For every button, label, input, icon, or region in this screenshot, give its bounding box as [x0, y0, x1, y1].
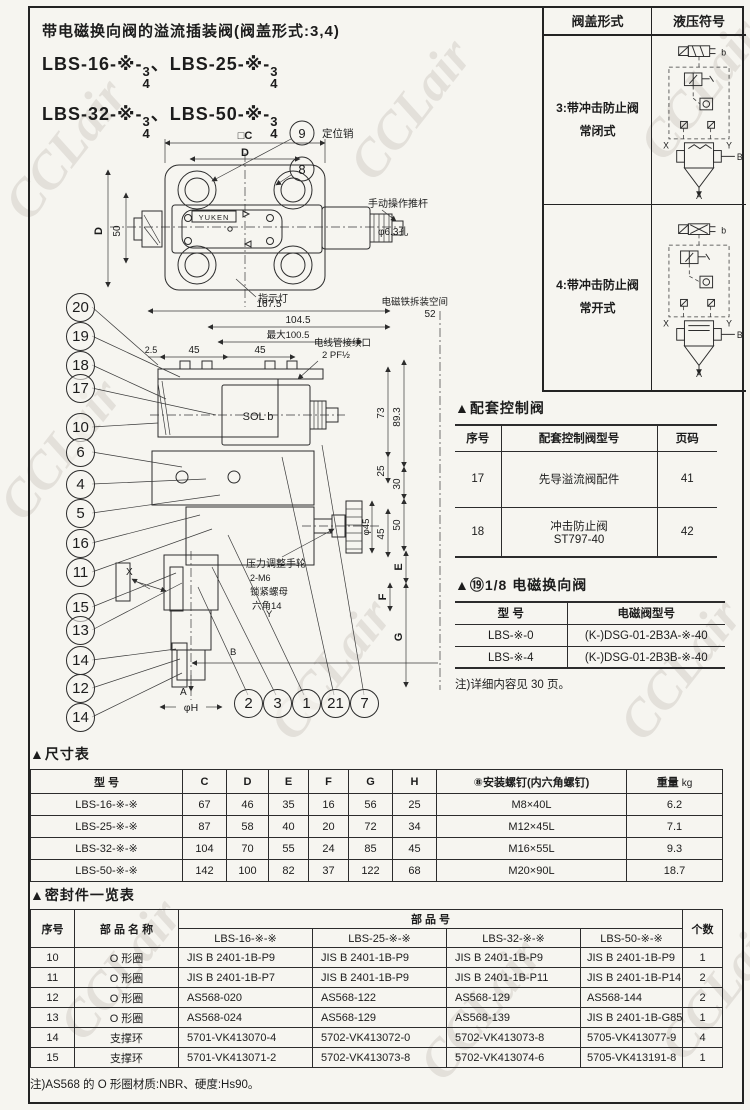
dim-phi-45: φ45	[361, 519, 372, 536]
balloon-13: 13	[66, 616, 95, 645]
cell-screw: M20×90L	[437, 860, 627, 882]
cell-F: 20	[309, 816, 349, 838]
cell-p32: 5702-VK413073-8	[447, 1028, 581, 1048]
dim-167-5: 167.5	[256, 299, 281, 310]
dim-45-a: 45	[188, 345, 200, 356]
dim-45-b: 45	[254, 345, 266, 356]
dim-E: E	[393, 563, 405, 570]
cell-model: LBS-50-※-※	[31, 860, 183, 882]
cell-G: 122	[349, 860, 393, 882]
cell-C: 142	[183, 860, 227, 882]
solenoid-valve-section: ▲⑲1/8 电磁换向阀 型 号 电磁阀型号 LBS-※-0 (K-)DSG-01…	[455, 575, 725, 692]
dim-D-side: D	[93, 227, 105, 235]
cell-p50: JIS B 2401-1B-P9	[581, 948, 683, 968]
cell-model-line1: 冲击防止阀	[504, 518, 655, 534]
cell-weight: 6.2	[627, 794, 723, 816]
balloon-16: 16	[66, 529, 95, 558]
cell-screw: M16×55L	[437, 838, 627, 860]
col-C: C	[183, 770, 227, 794]
cell-part-name: O 形圈	[75, 988, 179, 1008]
cell-qty: 1	[683, 1048, 723, 1068]
cover-header-form: 阀盖形式	[544, 6, 651, 36]
seal-table-title: ▲密封件一览表	[30, 885, 723, 905]
separator: 、	[151, 54, 170, 74]
cell-no: 17	[455, 451, 501, 507]
cell-p16: AS568-020	[179, 988, 313, 1008]
table-row: 11O 形圈JIS B 2401-1B-P7JIS B 2401-1B-P9JI…	[31, 968, 723, 988]
cell-F: 37	[309, 860, 349, 882]
solenoid-symbol: b	[679, 46, 727, 58]
cell-no: 18	[455, 507, 501, 557]
balloon-14a: 14	[66, 646, 95, 675]
solenoid-table-note: 注)详细内容见 30 页。	[455, 676, 725, 692]
cover-form-3-sub: 常闭式	[579, 120, 615, 143]
pilot-circuit-symbol	[669, 56, 729, 138]
port-y-label: Y	[726, 319, 732, 329]
col-G: G	[349, 770, 393, 794]
balloon-4: 4	[66, 470, 95, 499]
cell-model: LBS-※-4	[455, 646, 567, 668]
col-no: 序号	[455, 425, 501, 451]
cell-model: LBS-32-※-※	[31, 838, 183, 860]
dim-D-top: D	[241, 147, 249, 159]
hex-label: 六角14	[252, 600, 282, 612]
pushrod-label: 手动操作推杆	[368, 197, 428, 210]
seal-list-section: ▲密封件一览表 序号 部 品 名 称 部 品 号 个数 LBS-16-※-※ L…	[30, 885, 723, 1092]
cell-p25: JIS B 2401-1B-P9	[313, 968, 447, 988]
dim-50: 50	[112, 225, 123, 237]
dim-table-title: ▲尺寸表	[30, 744, 723, 764]
table-row: 10O 形圈JIS B 2401-1B-P9JIS B 2401-1B-P9JI…	[31, 948, 723, 968]
cell-no: 15	[31, 1048, 75, 1068]
cover-form-4-label: 4:带冲击防止阀	[556, 274, 639, 297]
callout-9: 9	[298, 126, 305, 141]
cell-C: 87	[183, 816, 227, 838]
cell-no: 13	[31, 1008, 75, 1028]
col-solenoid-model: 电磁阀型号	[567, 602, 725, 624]
port-x-label: X	[663, 141, 669, 151]
cell-p16: 5701-VK413071-2	[179, 1048, 313, 1068]
cell-F: 24	[309, 838, 349, 860]
balloon-14b: 14	[66, 703, 95, 732]
dim-F: F	[377, 593, 389, 600]
balloon-6: 6	[66, 438, 95, 467]
fraction: 34	[143, 66, 151, 91]
subcol-lbs32: LBS-32-※-※	[447, 929, 581, 948]
cell-p50: 5705-VK413191-8	[581, 1048, 683, 1068]
weight-label: 重量	[657, 777, 679, 789]
cover-form-4-sub: 常开式	[579, 297, 615, 320]
table-header-row: 型 号 电磁阀型号	[455, 602, 725, 624]
cell-E: 55	[269, 838, 309, 860]
cell-p25: 5702-VK413073-8	[313, 1048, 447, 1068]
frac-den: 4	[270, 78, 278, 90]
hole-label: φ6.3孔	[378, 226, 408, 238]
cell-qty: 2	[683, 988, 723, 1008]
col-model: 型 号	[455, 602, 567, 624]
port-A-label: A	[696, 191, 702, 200]
cell-F: 16	[309, 794, 349, 816]
table-row: 18 冲击防止阀 ST797-40 42	[455, 507, 717, 557]
dim-45c: 45	[376, 528, 387, 540]
cell-p50: JIS B 2401-1B-P14	[581, 968, 683, 988]
dim-G: G	[393, 633, 405, 642]
front-view: 167.5 电磁铁拆装空间 52 104.5 最大100.5 2.5 45 45…	[92, 296, 448, 717]
cell-model: LBS-16-※-※	[31, 794, 183, 816]
subcol-lbs16: LBS-16-※-※	[179, 929, 313, 948]
balloon-5: 5	[66, 499, 95, 528]
cell-D: 46	[227, 794, 269, 816]
cell-p32: JIS B 2401-1B-P9	[447, 948, 581, 968]
cell-weight: 18.7	[627, 860, 723, 882]
hydraulic-symbol-svg: b X Y	[654, 218, 744, 378]
dim-C: □C	[238, 130, 253, 142]
table-row: LBS-32-※-※1047055248545M16×55L9.3	[31, 838, 723, 860]
brand-label: YUKEN	[199, 213, 230, 222]
dim-25: 25	[376, 465, 387, 477]
cell-model-line2: ST797-40	[504, 534, 655, 546]
dim-73: 73	[376, 407, 387, 419]
table-row: LBS-25-※-※875840207234M12×45L7.1	[31, 816, 723, 838]
dim-2-5: 2.5	[145, 345, 158, 355]
cell-G: 72	[349, 816, 393, 838]
hydraulic-symbol-svg: b X Y	[654, 40, 744, 200]
balloon-3: 3	[263, 689, 292, 718]
cell-qty: 2	[683, 968, 723, 988]
col-model: 型 号	[31, 770, 183, 794]
port-B-label: B	[737, 330, 743, 340]
col-no: 序号	[31, 910, 75, 948]
cover-form-3: 3:带冲击防止阀 常闭式	[544, 36, 651, 204]
cell-D: 58	[227, 816, 269, 838]
cell-p32: 5702-VK413074-6	[447, 1048, 581, 1068]
weight-unit: kg	[682, 778, 693, 789]
col-screw: ⑧安装螺钉(内六角螺钉)	[437, 770, 627, 794]
col-page: 页码	[657, 425, 717, 451]
cell-weight: 7.1	[627, 816, 723, 838]
cell-part-name: O 形圈	[75, 948, 179, 968]
table-row: LBS-50-※-※142100823712268M20×90L18.7	[31, 860, 723, 882]
port-y-label: Y	[726, 141, 732, 151]
table-header-row: 序号 配套控制阀型号 页码	[455, 425, 717, 451]
solenoid-symbol: b	[679, 224, 727, 236]
cell-C: 104	[183, 838, 227, 860]
col-H: H	[393, 770, 437, 794]
cell-part-name: 支撑环	[75, 1028, 179, 1048]
cover-form-4: 4:带冲击防止阀 常开式	[544, 204, 651, 390]
model-2: LBS-25-※-	[170, 54, 271, 74]
col-D: D	[227, 770, 269, 794]
cell-H: 25	[393, 794, 437, 816]
cell-model: LBS-※-0	[455, 624, 567, 646]
port-X-label: X	[126, 567, 133, 578]
balloon-19: 19	[66, 322, 95, 351]
hydraulic-symbol-3: b X Y	[654, 40, 744, 205]
cell-p16: 5701-VK413070-4	[179, 1028, 313, 1048]
cell-screw: M12×45L	[437, 816, 627, 838]
table-row: LBS-※-0 (K-)DSG-01-2B3A-※-40	[455, 624, 725, 646]
balloon-17: 17	[66, 374, 95, 403]
table-row: 14支撑环5701-VK413070-45702-VK413072-05702-…	[31, 1028, 723, 1048]
cell-p25: AS568-122	[313, 988, 447, 1008]
seal-table-note: 注)AS568 的 O 形圈材质:NBR、硬度:Hs90。	[30, 1076, 723, 1092]
cell-p32: AS568-129	[447, 988, 581, 1008]
subcol-lbs50: LBS-50-※-※	[581, 929, 683, 948]
port-x-label: X	[663, 319, 669, 329]
cell-qty: 1	[683, 948, 723, 968]
cell-p32: JIS B 2401-1B-P11	[447, 968, 581, 988]
seal-list-table: 序号 部 品 名 称 部 品 号 个数 LBS-16-※-※ LBS-25-※-…	[30, 909, 723, 1068]
locating-pin-label: 定位销	[322, 127, 354, 140]
table-row: LBS-※-4 (K-)DSG-01-2B3B-※-40	[455, 646, 725, 668]
cover-form-3-label: 3:带冲击防止阀	[556, 97, 639, 120]
cell-p50: JIS B 2401-1B-G85	[581, 1008, 683, 1028]
cell-model: 先导溢流阀配件	[501, 451, 657, 507]
dim-104-5: 104.5	[285, 315, 310, 326]
handwheel-label: 压力调整手轮	[246, 557, 306, 570]
cell-no: 11	[31, 968, 75, 988]
cell-G: 56	[349, 794, 393, 816]
callout-8: 8	[298, 162, 305, 177]
dim-30: 30	[392, 478, 403, 490]
main-valve-symbol: X Y B A	[663, 141, 743, 200]
dim-max-100-5: 最大100.5	[267, 329, 310, 341]
cell-E: 35	[269, 794, 309, 816]
cell-solenoid-model: (K-)DSG-01-2B3B-※-40	[567, 646, 725, 668]
port-A-label: A	[696, 369, 702, 378]
cell-qty: 4	[683, 1028, 723, 1048]
cell-page: 42	[657, 507, 717, 557]
balloon-1: 1	[292, 689, 321, 718]
balloon-12: 12	[66, 674, 95, 703]
model-1: LBS-16-※-	[42, 54, 143, 74]
cell-screw: M8×40L	[437, 794, 627, 816]
balloon-2: 2	[234, 689, 263, 718]
dimension-table: 型 号 C D E F G H ⑧安装螺钉(内六角螺钉) 重量 kg LBS-1…	[30, 769, 723, 882]
port-B-label: B	[230, 647, 236, 658]
dim-phi-H: φH	[184, 702, 198, 714]
sol-b-label: SOL b	[243, 411, 274, 423]
table-header-row: 序号 部 品 名 称 部 品 号 个数	[31, 910, 723, 929]
control-valve-table: 序号 配套控制阀型号 页码 17 先导溢流阀配件 41 18 冲击防止阀 ST7…	[455, 424, 717, 558]
locknut-label: 锁紧螺母	[250, 586, 288, 598]
port-b-label: b	[721, 226, 726, 236]
dim-50b: 50	[392, 519, 403, 531]
cell-no: 10	[31, 948, 75, 968]
catalog-page: CCLair CCLair CCLair CCLair CCLair CCLai…	[0, 0, 750, 1110]
cell-C: 67	[183, 794, 227, 816]
col-E: E	[269, 770, 309, 794]
hydraulic-symbol-4: b X Y	[654, 218, 744, 383]
balloon-11: 11	[66, 558, 95, 587]
cell-G: 85	[349, 838, 393, 860]
conduit-size: 2 PF½	[322, 350, 350, 361]
conduit-label: 电线管接续口	[314, 337, 371, 349]
cell-part-name: O 形圈	[75, 1008, 179, 1028]
col-model: 配套控制阀型号	[501, 425, 657, 451]
cell-page: 41	[657, 451, 717, 507]
cell-no: 12	[31, 988, 75, 1008]
table-row: 13O 形圈AS568-024AS568-129AS568-139JIS B 2…	[31, 1008, 723, 1028]
page-title: 带电磁换向阀的溢流插装阀(阀盖形式:3,4)	[42, 20, 522, 41]
dimension-section: ▲尺寸表 型 号 C D E F G H ⑧安装螺钉(内六角螺钉) 重量 kg	[30, 744, 723, 882]
port-B-label: B	[737, 152, 743, 162]
control-valve-section: ▲配套控制阀 序号 配套控制阀型号 页码 17 先导溢流阀配件 41 18	[455, 398, 717, 558]
solenoid-table-title: ▲⑲1/8 电磁换向阀	[455, 575, 725, 595]
cell-H: 68	[393, 860, 437, 882]
cell-p25: AS568-129	[313, 1008, 447, 1028]
table-row: LBS-16-※-※674635165625M8×40L6.2	[31, 794, 723, 816]
col-part-name: 部 品 名 称	[75, 910, 179, 948]
cell-p25: 5702-VK413072-0	[313, 1028, 447, 1048]
cover-header-symbol: 液压符号	[652, 6, 746, 36]
table-row: 15支撑环5701-VK413071-25702-VK413073-85702-…	[31, 1048, 723, 1068]
col-qty: 个数	[683, 910, 723, 948]
column-divider	[651, 6, 652, 390]
control-table-title: ▲配套控制阀	[455, 398, 717, 418]
balloon-20: 20	[66, 293, 95, 322]
cell-p50: AS568-144	[581, 988, 683, 1008]
balloon-21: 21	[321, 689, 350, 718]
cell-solenoid-model: (K-)DSG-01-2B3A-※-40	[567, 624, 725, 646]
cell-p25: JIS B 2401-1B-P9	[313, 948, 447, 968]
cell-model: LBS-25-※-※	[31, 816, 183, 838]
model-line-1: LBS-16-※-34、LBS-25-※-34	[42, 50, 522, 91]
cell-weight: 9.3	[627, 838, 723, 860]
dim-89-3: 89.3	[392, 407, 403, 427]
col-weight: 重量 kg	[627, 770, 723, 794]
cell-H: 45	[393, 838, 437, 860]
cell-qty: 1	[683, 1008, 723, 1028]
col-part-number: 部 品 号	[179, 910, 683, 929]
cell-p16: AS568-024	[179, 1008, 313, 1028]
cell-p16: JIS B 2401-1B-P7	[179, 968, 313, 988]
cell-p50: 5705-VK413077-9	[581, 1028, 683, 1048]
col-F: F	[309, 770, 349, 794]
main-valve-symbol: X Y B A	[663, 319, 743, 378]
cell-part-name: 支撑环	[75, 1048, 179, 1068]
cell-no: 14	[31, 1028, 75, 1048]
frac-den: 4	[143, 78, 151, 90]
cell-H: 34	[393, 816, 437, 838]
cell-D: 100	[227, 860, 269, 882]
plan-view: YUKEN □C D D	[93, 121, 428, 307]
fraction: 34	[270, 66, 278, 91]
cell-p32: AS568-139	[447, 1008, 581, 1028]
solenoid-space-label: 电磁铁拆装空间	[381, 296, 448, 308]
cell-E: 40	[269, 816, 309, 838]
locknut-count-label: 2-M6	[250, 573, 271, 583]
pilot-circuit-symbol	[669, 234, 729, 316]
port-b-label: b	[721, 48, 726, 58]
balloon-7: 7	[350, 689, 379, 718]
cell-E: 82	[269, 860, 309, 882]
cell-D: 70	[227, 838, 269, 860]
cell-model: 冲击防止阀 ST797-40	[501, 507, 657, 557]
cover-form-table: 阀盖形式 液压符号 3:带冲击防止阀 常闭式 b	[542, 6, 746, 392]
solenoid-space-value: 52	[424, 309, 436, 320]
solenoid-valve-table: 型 号 电磁阀型号 LBS-※-0 (K-)DSG-01-2B3A-※-40 L…	[455, 601, 725, 669]
table-row: 12O 形圈AS568-020AS568-122AS568-129AS568-1…	[31, 988, 723, 1008]
port-A-label: A	[180, 687, 187, 698]
table-row: 17 先导溢流阀配件 41	[455, 451, 717, 507]
table-header-row: 型 号 C D E F G H ⑧安装螺钉(内六角螺钉) 重量 kg	[31, 770, 723, 794]
cell-part-name: O 形圈	[75, 968, 179, 988]
subcol-lbs25: LBS-25-※-※	[313, 929, 447, 948]
cell-p16: JIS B 2401-1B-P9	[179, 948, 313, 968]
